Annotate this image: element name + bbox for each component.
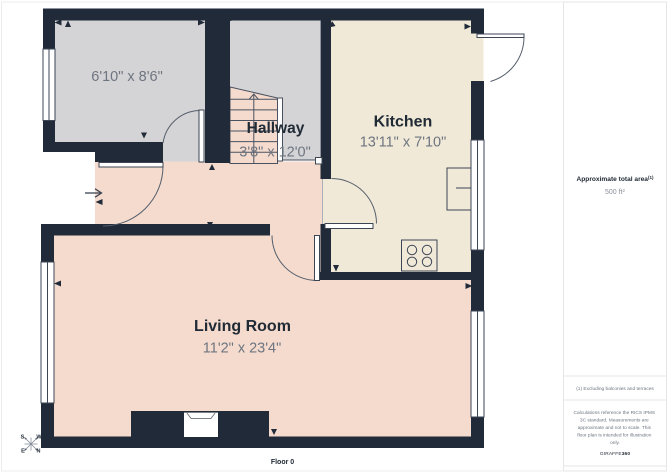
svg-text:N: N bbox=[37, 449, 41, 455]
svg-text:Floor 0: Floor 0 bbox=[271, 459, 294, 466]
svg-text:6'10" x 8'6": 6'10" x 8'6" bbox=[91, 69, 162, 85]
svg-text:Hallway: Hallway bbox=[247, 120, 305, 137]
svg-text:E: E bbox=[21, 449, 25, 455]
svg-text:GIRAFFE360: GIRAFFE360 bbox=[600, 451, 630, 457]
svg-text:W: W bbox=[36, 435, 42, 441]
svg-text:Approximate total area(1): Approximate total area(1) bbox=[577, 175, 654, 183]
svg-text:11'2" x 23'4": 11'2" x 23'4" bbox=[203, 341, 281, 357]
svg-text:13'11" x 7'10": 13'11" x 7'10" bbox=[360, 135, 447, 151]
svg-text:S: S bbox=[21, 435, 25, 441]
svg-text:(1) Excluding balconies and te: (1) Excluding balconies and terraces bbox=[576, 386, 654, 392]
svg-text:Living Room: Living Room bbox=[194, 318, 291, 335]
svg-text:Kitchen: Kitchen bbox=[374, 114, 433, 131]
svg-text:500 ft2: 500 ft2 bbox=[605, 188, 626, 196]
svg-text:3'8" x 12'0": 3'8" x 12'0" bbox=[239, 145, 310, 161]
